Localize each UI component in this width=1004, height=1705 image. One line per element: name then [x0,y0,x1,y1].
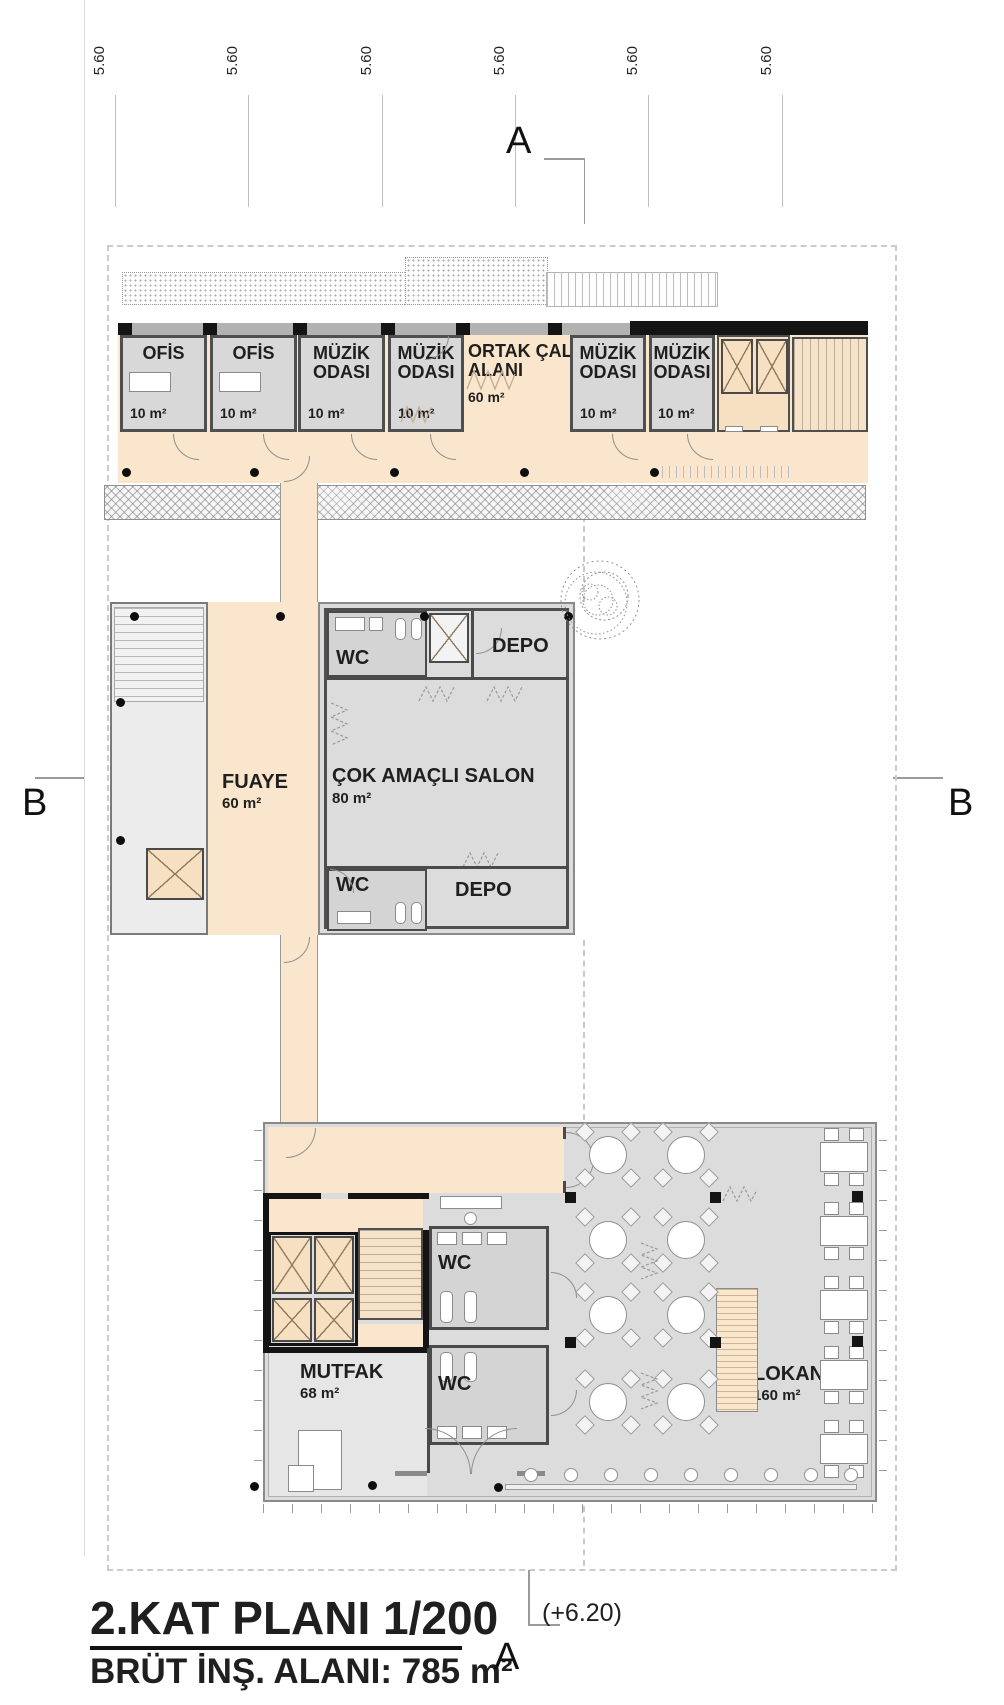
table-top [820,1290,868,1320]
chair [575,1282,595,1302]
wall-black-heavy [630,321,868,335]
wall-stub [395,1471,427,1476]
chair [824,1173,839,1186]
mutfak-area-label: 68 m² [300,1386,339,1402]
column-square [852,1336,863,1347]
column-dot [368,1481,377,1490]
column-dot [494,1483,503,1492]
railing-post [644,1468,658,1482]
fuaye-area [208,602,318,935]
folding-partition-icon [638,1242,660,1287]
corridor-connector-north [280,483,318,603]
booth-table [820,1420,868,1478]
grid-line-1 [115,95,116,207]
table-top [820,1216,868,1246]
chair [575,1369,595,1389]
section-a-leader-top [544,158,584,160]
staircase-core [358,1228,423,1320]
room-area: 10 m² [220,406,257,421]
chair [849,1420,864,1433]
railing-post [684,1468,698,1482]
room-label: OFİS [213,344,294,363]
acoustic-zigzag-icon [418,684,458,709]
chair [849,1247,864,1260]
elevation-note: (+6.20) [542,1600,622,1626]
folding-partition-icon [638,1372,660,1417]
toilet [395,618,406,640]
reception-counter [440,1196,502,1209]
folding-partition-icon [466,368,516,397]
elevator-shaft [721,339,753,394]
section-marker-b-left: B [22,784,47,822]
table-top [589,1383,627,1421]
column-square [852,1191,863,1202]
table-top [820,1142,868,1172]
grid-dimension-label: 5.60 [625,46,640,75]
salon-area-label: 80 m² [332,791,371,807]
tick-scale-right [879,1140,887,1490]
roof-pergola-band [122,272,407,305]
desk [219,372,261,392]
chair [824,1247,839,1260]
desk [129,372,171,392]
railing-post [844,1468,858,1482]
sink [369,617,383,631]
railing-post [724,1468,738,1482]
staircase-top-wing [792,337,868,432]
room-area: 10 m² [658,406,695,421]
elevator-shaft [272,1236,312,1294]
toilet [395,902,406,924]
chair [621,1122,641,1142]
chair [575,1415,595,1435]
room-muzik-4: MÜZİK ODASI 10 m² [649,335,715,432]
elevator-door [760,426,778,432]
section-a-line-segment [583,940,585,1120]
chair [849,1128,864,1141]
wall-black-segment [381,323,395,335]
round-table [574,1368,642,1436]
wall-black-segment [456,323,470,335]
wc-room-1: WC [429,1226,549,1330]
column-dot [250,468,259,477]
round-table [652,1368,720,1436]
salon-label: ÇOK AMAÇLI SALON [332,766,535,787]
room-label: MÜZİK ODASI [573,344,643,382]
chair [653,1328,673,1348]
tick-scale-left [254,1130,262,1475]
chair [653,1207,673,1227]
sink [487,1232,507,1245]
wc-label: WC [438,1374,471,1395]
roof-louver-band [546,272,718,307]
room-ofis-1: OFİS 10 m² [120,335,207,432]
folding-partition-icon [722,1184,758,1209]
grid-line-3 [382,95,383,207]
elevator-shaft [429,613,469,663]
railing [662,466,795,478]
sink [462,1232,482,1245]
sink-counter [337,911,371,924]
toilet [411,902,422,924]
chair [575,1122,595,1142]
table-top [589,1136,627,1174]
column-dot [130,612,139,621]
chair [849,1202,864,1215]
elevator-door [725,426,743,432]
section-a-leader-bottom-v [528,1570,530,1625]
chair [824,1321,839,1334]
wc-label: WC [438,1253,471,1274]
column-dot [650,468,659,477]
chair [849,1276,864,1289]
chair [824,1276,839,1289]
room-area: 10 m² [308,406,345,421]
round-table [574,1121,642,1189]
depo-label-bottom: DEPO [455,880,512,901]
table-top [667,1221,705,1259]
booth-table [820,1128,868,1186]
column-square [710,1192,721,1203]
sink [437,1232,457,1245]
railing-post [524,1468,538,1482]
wc-label: WC [336,648,369,669]
grid-dimension-label: 5.60 [759,46,774,75]
staircase-restaurant [716,1288,758,1412]
chair [621,1207,641,1227]
chair [575,1168,595,1188]
chair [699,1168,719,1188]
room-label: MÜZİK ODASI [301,344,382,382]
column-dot [390,468,399,477]
section-marker-a-top: A [506,122,531,160]
toilet [464,1291,477,1323]
lokanta-area-label: 160 m² [753,1388,801,1404]
elevator-shaft [314,1236,354,1294]
fuaye-label: FUAYE [222,772,288,793]
elevator-shaft [146,848,204,900]
column-dot [116,698,125,707]
roof-pergola-band [405,257,548,305]
round-table [574,1281,642,1349]
chair [653,1415,673,1435]
grid-dimension-label: 5.60 [492,46,507,75]
booth-table [820,1276,868,1334]
round-table [574,1206,642,1274]
grid-dimension-label: 5.60 [359,46,374,75]
elevator-shaft [314,1298,354,1342]
acoustic-zigzag-icon [462,850,502,875]
wc-room-mid-top: WC [327,611,427,677]
reception-stool [464,1212,477,1225]
table-top [589,1221,627,1259]
folding-partition-icon [400,404,434,429]
elevator-shaft [272,1298,312,1342]
table-top [820,1360,868,1390]
grid-dimension-label: 5.60 [225,46,240,75]
column-dot [520,468,529,477]
floor-plan-sheet: 5.60 5.60 5.60 5.60 5.60 5.60 A B B OFİS… [0,0,1004,1705]
chair [824,1128,839,1141]
chair [849,1173,864,1186]
room-muzik-1: MÜZİK ODASI 10 m² [298,335,385,432]
wc-room-2: WC [429,1345,549,1445]
section-a-line-segment [583,1506,585,1566]
plan-subtitle: BRÜT İNŞ. ALANI: 785 m² [90,1654,513,1691]
round-table [652,1121,720,1189]
chair [575,1328,595,1348]
table-top [820,1434,868,1464]
sink [462,1426,482,1439]
chair [824,1202,839,1215]
chair [699,1282,719,1302]
grid-line-2 [248,95,249,207]
sheet-edge-line [84,0,85,1556]
tick-scale-bottom [263,1504,877,1513]
railing-bar [505,1484,857,1490]
room-label: OFİS [123,344,204,363]
fuaye-area-label: 60 m² [222,796,261,812]
column-square [710,1337,721,1348]
chair [824,1391,839,1404]
grid-line-5 [648,95,649,207]
chair [699,1207,719,1227]
chair [849,1321,864,1334]
wall [471,611,474,677]
column-dot [420,612,429,621]
title-underline [90,1646,462,1650]
wall-black-segment [203,323,217,335]
plan-title: 2.KAT PLANI 1/200 [90,1594,498,1642]
section-marker-b-right: B [948,784,973,822]
column-dot [122,468,131,477]
section-a-leader-top-v [584,158,585,224]
railing-post [764,1468,778,1482]
chair [653,1168,673,1188]
column-dot [116,836,125,845]
chair [824,1420,839,1433]
depo-label-top: DEPO [492,636,549,657]
column-square [565,1192,576,1203]
chair [653,1122,673,1142]
section-b-leader-left [35,777,84,779]
table-top [667,1383,705,1421]
chair [699,1253,719,1273]
table-top [589,1296,627,1334]
section-b-leader-right [893,777,943,779]
booth-table [820,1346,868,1404]
sink-counter [335,617,365,631]
column-dot [276,612,285,621]
railing-post [804,1468,818,1482]
staircase-mid-block [114,607,204,702]
chair [699,1415,719,1435]
chair [824,1346,839,1359]
room-area: 10 m² [130,406,167,421]
chair [621,1168,641,1188]
chair [699,1122,719,1142]
section-marker-a-bottom: A [494,1638,519,1676]
mutfak-label: MUTFAK [300,1362,383,1383]
toilet [440,1291,453,1323]
room-muzik-3: MÜZİK ODASI 10 m² [570,335,646,432]
grid-line-6 [782,95,783,207]
wall-black-segment [548,323,562,335]
room-label: MÜZİK ODASI [652,344,712,382]
round-table [652,1206,720,1274]
corridor-connector-south [280,935,318,1123]
planter [288,1465,314,1492]
acoustic-zigzag-icon [328,702,350,751]
chair [824,1465,839,1478]
column-dot [250,1482,259,1491]
column-square [565,1337,576,1348]
table-top [667,1296,705,1334]
tree-symbol [556,556,644,644]
room-ofis-2: OFİS 10 m² [210,335,297,432]
chair [621,1415,641,1435]
railing-post [604,1468,618,1482]
toilet [411,618,422,640]
room-area: 10 m² [580,406,617,421]
railing-post [564,1468,578,1482]
chair [575,1207,595,1227]
booth-table [820,1202,868,1260]
acoustic-zigzag-icon [486,684,526,709]
table-top [667,1136,705,1174]
chair [849,1346,864,1359]
grid-dimension-label: 5.60 [92,46,107,75]
chair [699,1369,719,1389]
chair [575,1253,595,1273]
chair [849,1391,864,1404]
elevator-shaft [756,339,788,394]
wall [327,677,569,680]
chair [621,1328,641,1348]
wall-black-segment [118,323,132,335]
wall-black-segment [293,323,307,335]
walkway-hatch [104,485,866,520]
core-corridor [358,1324,423,1347]
